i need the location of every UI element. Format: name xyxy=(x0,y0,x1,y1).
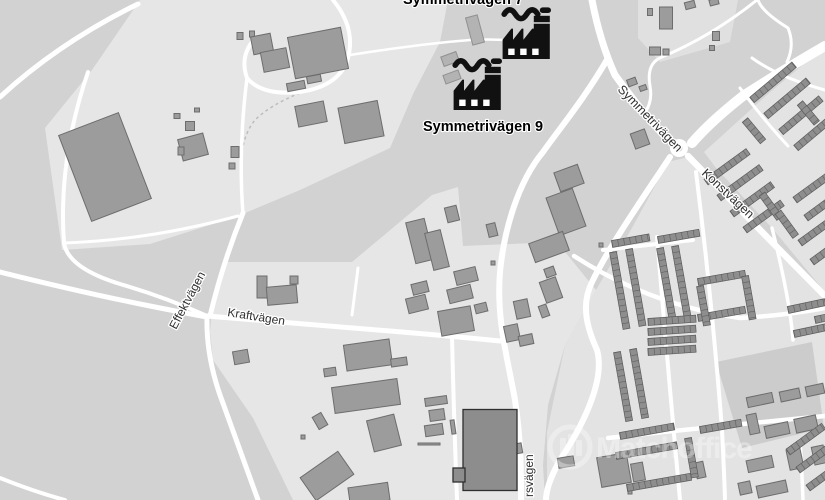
building xyxy=(663,49,669,55)
building xyxy=(453,468,465,482)
building xyxy=(186,122,195,131)
building xyxy=(513,299,530,320)
building xyxy=(424,423,443,436)
building xyxy=(324,367,337,377)
building xyxy=(630,129,650,149)
map-canvas[interactable]: SymmetrivägenKonstvägenEffektvägenKraftv… xyxy=(0,0,825,500)
land-area xyxy=(210,187,596,500)
building xyxy=(195,108,200,112)
building xyxy=(639,84,647,91)
building xyxy=(232,349,249,364)
watermark-building-icon xyxy=(560,438,566,456)
building xyxy=(290,276,298,284)
building xyxy=(231,147,239,158)
factory-icon[interactable] xyxy=(503,10,550,59)
building xyxy=(301,435,305,439)
building xyxy=(237,33,243,40)
poi-address-label[interactable]: Symmetrivägen 9 xyxy=(423,119,543,135)
building xyxy=(178,147,184,155)
building xyxy=(710,46,715,51)
building xyxy=(599,243,603,247)
building xyxy=(738,481,752,495)
building xyxy=(491,261,495,265)
building xyxy=(260,48,289,73)
building xyxy=(438,306,475,336)
building xyxy=(266,285,297,306)
factory-icon[interactable] xyxy=(454,61,501,110)
building xyxy=(443,70,461,84)
building xyxy=(418,443,440,445)
building xyxy=(174,114,180,119)
building xyxy=(650,47,661,55)
building xyxy=(391,357,408,367)
building xyxy=(713,32,720,41)
building xyxy=(631,462,646,482)
building xyxy=(229,163,235,169)
street-label: rsvägen xyxy=(522,454,536,497)
building xyxy=(554,164,584,191)
watermark-building-icon xyxy=(576,440,582,456)
building xyxy=(518,334,534,347)
building xyxy=(338,101,384,144)
building xyxy=(429,409,445,422)
building xyxy=(648,9,653,16)
building xyxy=(503,324,520,343)
building xyxy=(486,223,498,238)
watermark-text: Matchoffice xyxy=(596,432,752,465)
poi-address-label[interactable]: Symmetrivägen 7 xyxy=(403,0,523,8)
building xyxy=(463,410,517,491)
watermark-building-icon xyxy=(568,434,574,456)
map-svg[interactable]: SymmetrivägenKonstvägenEffektvägenKraftv… xyxy=(0,0,825,500)
building xyxy=(257,276,267,298)
road xyxy=(0,478,65,500)
building xyxy=(660,7,673,29)
road xyxy=(758,0,791,62)
building xyxy=(546,188,586,235)
